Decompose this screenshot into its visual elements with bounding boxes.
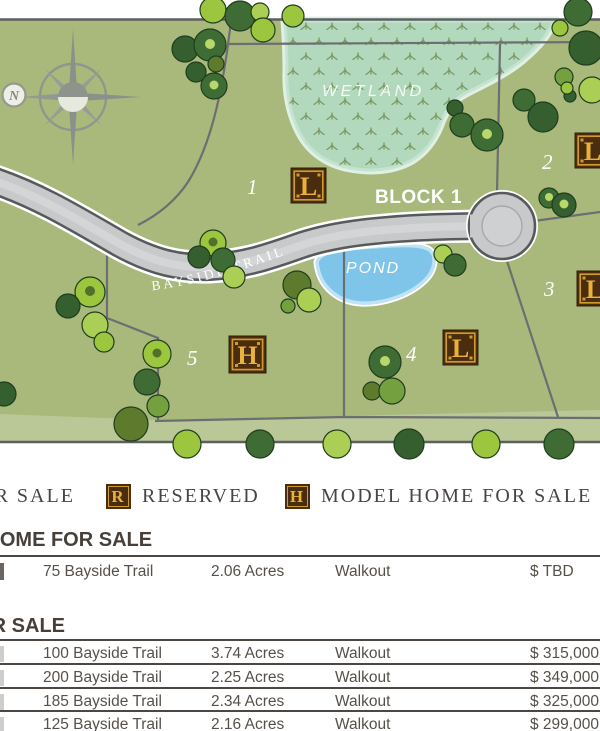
basement-cell: Walkout <box>335 645 390 663</box>
table-rule <box>0 687 600 689</box>
basement-cell: Walkout <box>335 716 390 731</box>
legend-item-reserved: R RESERVED <box>106 484 260 509</box>
compass-north-label: N <box>8 89 20 104</box>
legend-label: MODEL HOME FOR SALE <box>321 485 592 508</box>
legend-label: RESERVED <box>142 485 260 508</box>
svg-text:L: L <box>452 334 469 363</box>
acreage-cell: 2.16 Acres <box>211 716 284 731</box>
lot-1-number: 1 <box>247 175 258 199</box>
model-home-section-title: MODEL HOME FOR SALE <box>0 529 152 552</box>
address-cell: 125 Bayside Trail <box>43 716 162 731</box>
svg-text:L: L <box>586 275 600 304</box>
lot-badge-3: L <box>577 271 600 306</box>
acreage-cell: 2.34 Acres <box>211 693 284 711</box>
model-home-badge-icon: H <box>285 484 310 509</box>
svg-text:H: H <box>237 341 257 370</box>
acreage-cell: 3.74 Acres <box>211 645 284 663</box>
cut-cell <box>0 670 4 686</box>
lot-5-number: 5 <box>187 346 198 370</box>
table-rule <box>0 663 600 665</box>
lot-badge-5-model-home: H <box>229 336 266 373</box>
price-cell: $ 315,000 <box>530 645 599 663</box>
lot-badge-1: L <box>291 168 326 203</box>
address-cell: 75 Bayside Trail <box>43 563 153 581</box>
site-plan-flyer: N <box>0 0 600 731</box>
lot-3-number: 3 <box>543 277 555 301</box>
pond-label: POND <box>346 260 400 277</box>
cut-cell <box>0 563 4 580</box>
legend-label: FOR SALE <box>0 485 75 508</box>
address-cell: 185 Bayside Trail <box>43 693 162 711</box>
legend-item-for-sale: L FOR SALE <box>0 484 75 509</box>
cut-cell <box>0 694 4 710</box>
acreage-cell: 2.25 Acres <box>211 669 284 687</box>
basement-cell: Walkout <box>335 669 390 687</box>
lot-4-number: 4 <box>406 342 417 366</box>
price-cell: $ 349,000 <box>530 669 599 687</box>
price-cell: $ 325,000 <box>530 693 599 711</box>
wetland-label: WETLAND <box>322 83 425 100</box>
price-cell: $ 299,000 <box>530 716 599 731</box>
table-rule <box>0 710 600 712</box>
reserved-badge-icon: R <box>106 484 131 509</box>
lot-badge-4: L <box>443 330 478 365</box>
price-cell: $ TBD <box>530 563 574 581</box>
address-cell: 200 Bayside Trail <box>43 669 162 687</box>
plat-map: N <box>0 0 600 462</box>
legend-item-model-home: H MODEL HOME FOR SALE <box>285 484 592 509</box>
lot-badge-2: L <box>575 133 600 168</box>
acreage-cell: 2.06 Acres <box>211 563 284 581</box>
svg-text:L: L <box>300 172 317 201</box>
block-label: BLOCK 1 <box>375 187 462 208</box>
lots-section-title: LOTS FOR SALE <box>0 615 65 638</box>
table-rule <box>0 555 600 557</box>
basement-cell: Walkout <box>335 563 390 581</box>
basement-cell: Walkout <box>335 693 390 711</box>
address-cell: 100 Bayside Trail <box>43 645 162 663</box>
cut-cell <box>0 646 4 662</box>
lot-2-number: 2 <box>542 150 553 174</box>
cut-cell <box>0 717 4 731</box>
svg-text:L: L <box>584 137 600 166</box>
table-rule <box>0 639 600 641</box>
